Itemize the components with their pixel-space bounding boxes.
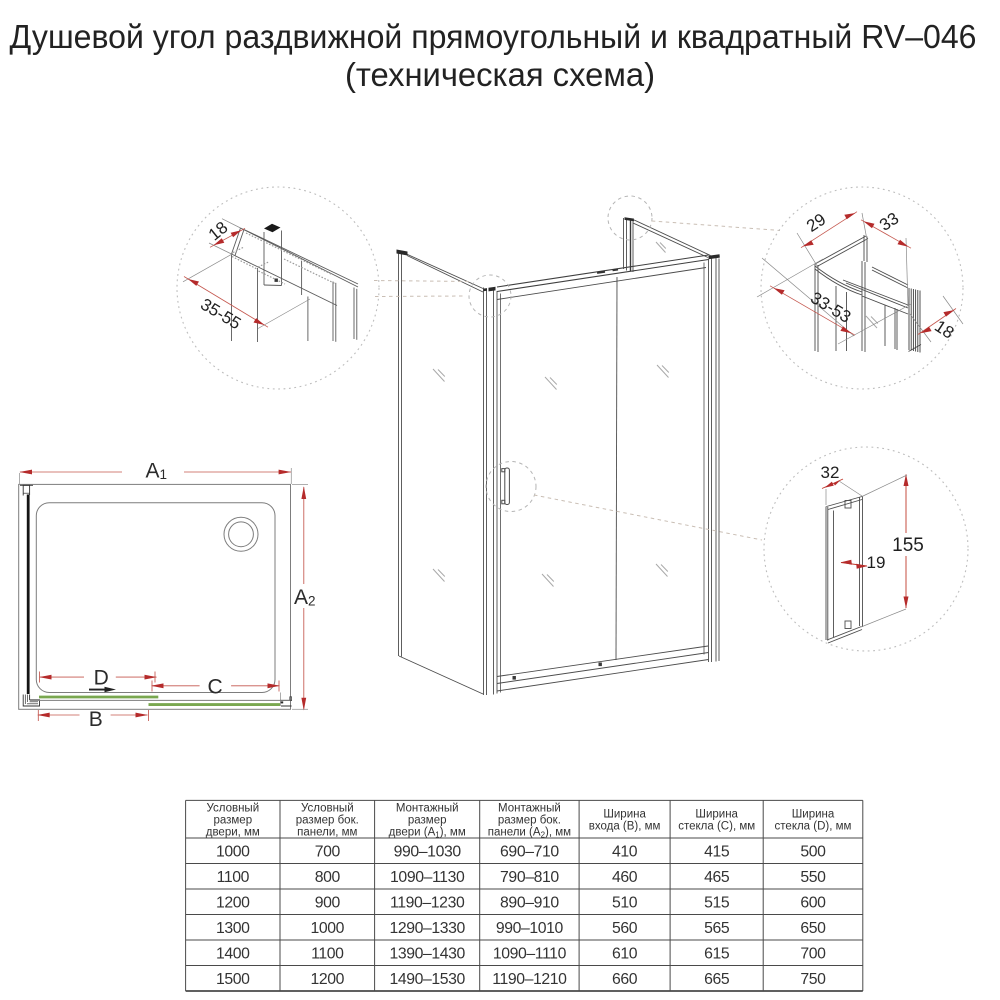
- svg-text:410: 410: [612, 844, 638, 861]
- svg-text:700: 700: [315, 844, 341, 861]
- svg-text:750: 750: [800, 971, 826, 988]
- svg-text:A1: A1: [146, 460, 168, 483]
- svg-text:Монтажный: Монтажный: [498, 803, 561, 815]
- svg-text:Ширина: Ширина: [792, 809, 835, 821]
- svg-text:(техническая схема): (техническая схема): [345, 56, 655, 93]
- svg-text:входа (В), мм: входа (В), мм: [589, 821, 661, 833]
- svg-text:двери, мм: двери, мм: [206, 827, 260, 839]
- svg-text:890–910: 890–910: [500, 895, 559, 912]
- svg-text:32: 32: [821, 463, 840, 482]
- svg-text:1190–1210: 1190–1210: [492, 971, 567, 988]
- svg-text:C: C: [208, 675, 223, 698]
- svg-text:990–1030: 990–1030: [394, 844, 462, 861]
- svg-text:размер бок.: размер бок.: [296, 815, 359, 827]
- svg-text:19: 19: [867, 553, 886, 572]
- svg-text:1100: 1100: [311, 946, 344, 963]
- svg-text:660: 660: [612, 971, 638, 988]
- svg-text:610: 610: [612, 946, 638, 963]
- svg-text:Ширина: Ширина: [603, 809, 646, 821]
- svg-text:900: 900: [315, 895, 341, 912]
- svg-text:1000: 1000: [216, 844, 250, 861]
- svg-text:1490–1530: 1490–1530: [389, 971, 465, 988]
- svg-text:Условный: Условный: [206, 803, 259, 815]
- svg-text:размер бок.: размер бок.: [498, 815, 561, 827]
- svg-text:460: 460: [612, 869, 638, 886]
- svg-text:B: B: [89, 708, 103, 731]
- svg-text:415: 415: [704, 844, 730, 861]
- svg-text:565: 565: [704, 920, 730, 937]
- svg-text:665: 665: [704, 971, 730, 988]
- svg-text:размер: размер: [213, 815, 252, 827]
- svg-text:Монтажный: Монтажный: [396, 803, 459, 815]
- svg-text:700: 700: [800, 946, 826, 963]
- svg-text:1090–1130: 1090–1130: [390, 869, 465, 886]
- svg-text:панели, мм: панели, мм: [297, 827, 357, 839]
- svg-text:550: 550: [800, 869, 826, 886]
- svg-text:двери (А1), мм: двери (А1), мм: [389, 827, 466, 840]
- svg-text:790–810: 790–810: [500, 869, 559, 886]
- svg-text:990–1010: 990–1010: [496, 920, 564, 937]
- svg-text:1400: 1400: [216, 946, 250, 963]
- svg-text:1200: 1200: [311, 971, 345, 988]
- svg-text:Душевой угол раздвижной прямоу: Душевой угол раздвижной прямоугольный и …: [10, 18, 977, 55]
- svg-text:510: 510: [612, 895, 638, 912]
- svg-text:1390–1430: 1390–1430: [389, 946, 465, 963]
- svg-text:1000: 1000: [311, 920, 345, 937]
- svg-text:690–710: 690–710: [500, 844, 559, 861]
- svg-text:500: 500: [800, 844, 826, 861]
- svg-text:D: D: [94, 667, 109, 690]
- svg-text:панели (А2), мм: панели (А2), мм: [488, 827, 571, 840]
- svg-text:155: 155: [892, 535, 924, 556]
- svg-text:1090–1110: 1090–1110: [493, 946, 567, 963]
- svg-text:800: 800: [315, 869, 341, 886]
- svg-text:Условный: Условный: [301, 803, 354, 815]
- svg-text:1100: 1100: [217, 869, 250, 886]
- svg-text:1300: 1300: [216, 920, 250, 937]
- svg-text:1290–1330: 1290–1330: [389, 920, 465, 937]
- svg-text:35-55: 35-55: [197, 295, 244, 334]
- svg-text:600: 600: [800, 895, 826, 912]
- svg-text:515: 515: [704, 895, 730, 912]
- svg-text:560: 560: [612, 920, 638, 937]
- svg-text:18: 18: [931, 316, 957, 342]
- svg-text:1200: 1200: [216, 895, 250, 912]
- svg-text:стекла (С), мм: стекла (С), мм: [678, 821, 755, 833]
- svg-text:465: 465: [704, 869, 730, 886]
- svg-text:A2: A2: [294, 586, 316, 609]
- svg-text:650: 650: [800, 920, 826, 937]
- svg-text:615: 615: [704, 946, 730, 963]
- svg-text:1190–1230: 1190–1230: [390, 895, 465, 912]
- svg-text:размер: размер: [408, 815, 447, 827]
- svg-text:1500: 1500: [216, 971, 250, 988]
- svg-text:Ширина: Ширина: [695, 809, 738, 821]
- svg-text:стекла (D), мм: стекла (D), мм: [775, 821, 852, 833]
